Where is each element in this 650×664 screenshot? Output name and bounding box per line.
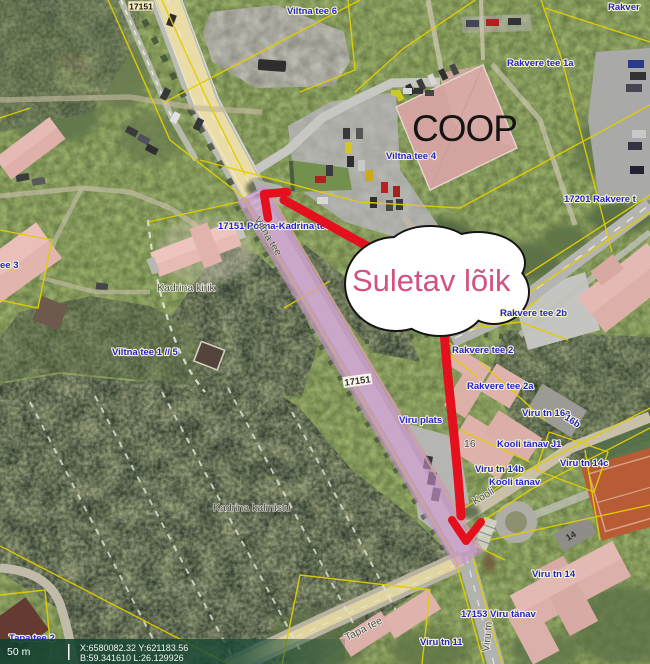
svg-text:Kadrina kirik: Kadrina kirik bbox=[157, 282, 216, 294]
svg-text:X:6580082.32 Y:621183.56: X:6580082.32 Y:621183.56 bbox=[80, 643, 188, 653]
svg-text:17151: 17151 bbox=[129, 2, 153, 12]
svg-text:COOP: COOP bbox=[412, 108, 517, 149]
svg-text:Rakvere tee 1a: Rakvere tee 1a bbox=[507, 58, 574, 69]
svg-text:Viru plats: Viru plats bbox=[399, 415, 442, 426]
svg-text:Viltna tee 1 // 5: Viltna tee 1 // 5 bbox=[112, 347, 179, 358]
svg-text:Viltna tee 4: Viltna tee 4 bbox=[386, 151, 437, 162]
svg-text:B:59.341610 L:26.129926: B:59.341610 L:26.129926 bbox=[80, 653, 184, 663]
svg-text:Rakver: Rakver bbox=[608, 2, 640, 13]
svg-text:Viru tn 11: Viru tn 11 bbox=[420, 637, 463, 648]
svg-text:Suletav lõik: Suletav lõik bbox=[352, 263, 511, 298]
svg-text:Kadrina kalmistu: Kadrina kalmistu bbox=[213, 502, 291, 514]
svg-text:Viltna tee 6: Viltna tee 6 bbox=[287, 6, 337, 17]
svg-text:16: 16 bbox=[464, 438, 476, 450]
svg-text:Rakvere tee 2b: Rakvere tee 2b bbox=[500, 308, 567, 319]
svg-text:Kooli tänav J1: Kooli tänav J1 bbox=[497, 439, 562, 450]
svg-text:17201 Rakvere t: 17201 Rakvere t bbox=[564, 194, 637, 205]
svg-text:Rakvere tee 2a: Rakvere tee 2a bbox=[467, 381, 534, 392]
svg-text:17151 Põlma-Kadrina tee: 17151 Põlma-Kadrina tee bbox=[218, 221, 330, 232]
svg-text:Viru tn 14: Viru tn 14 bbox=[532, 569, 576, 580]
svg-text:Viru tn 16a: Viru tn 16a bbox=[522, 408, 571, 419]
svg-text:Viru tn 14c: Viru tn 14c bbox=[560, 458, 608, 469]
svg-text:17153 Viru tänav: 17153 Viru tänav bbox=[461, 609, 537, 620]
svg-text:ee 3: ee 3 bbox=[0, 260, 19, 271]
svg-text:Rakvere tee 2: Rakvere tee 2 bbox=[452, 345, 513, 356]
svg-text:Kooli tänav: Kooli tänav bbox=[489, 477, 541, 488]
svg-text:50 m: 50 m bbox=[7, 646, 31, 658]
svg-text:Viru tn 14b: Viru tn 14b bbox=[475, 464, 524, 475]
